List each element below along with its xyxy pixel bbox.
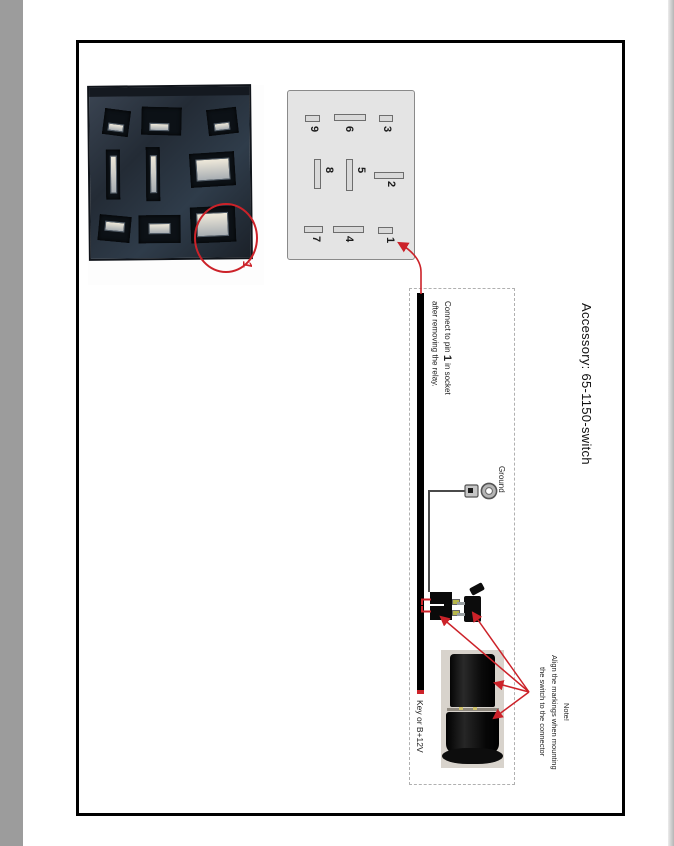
note-line2: Align the markings when mounting xyxy=(548,617,560,807)
pin-label-7: 7 xyxy=(310,236,322,242)
pin1-callout-number: 1 xyxy=(240,261,255,268)
switch-marking xyxy=(459,707,463,710)
switch-marking xyxy=(473,707,477,710)
connect-instruction-text: Connect to pin 1 in socket after removin… xyxy=(429,301,453,496)
note-line3: the switch to the connector xyxy=(536,617,548,807)
relay-slot xyxy=(102,108,131,137)
relay-slot xyxy=(141,107,182,136)
pin-slot-9 xyxy=(305,115,320,122)
relay-edge xyxy=(89,86,249,97)
left-margin-bar xyxy=(0,0,23,846)
document-viewer: 1 9 6 3 8 5 2 7 4 1 Connect to pin 1 in … xyxy=(0,0,674,846)
pin-slot-3 xyxy=(379,115,393,122)
switch-pin xyxy=(457,602,465,605)
main-power-wire xyxy=(417,293,424,690)
pin-label-8: 8 xyxy=(323,167,335,173)
switch-connector-symbol xyxy=(430,592,452,620)
switch-photo-upper-body xyxy=(450,654,495,707)
relay-socket-photo: 1 xyxy=(88,85,264,285)
pin-slot-5 xyxy=(346,159,353,191)
relay-slot xyxy=(97,214,131,243)
ground-label: Ground xyxy=(497,466,506,493)
connect-instruction-line2: after removing the relay. xyxy=(429,301,441,496)
pin-slot-7 xyxy=(304,226,323,233)
pin-layout-diagram: 9 6 3 8 5 2 7 4 1 xyxy=(287,90,415,260)
pin-label-4: 4 xyxy=(343,236,355,242)
mounting-note: Note! Align the markings when mounting t… xyxy=(536,617,572,807)
pin-slot-2 xyxy=(374,172,404,179)
relay-slot xyxy=(206,107,239,136)
pin-label-3: 3 xyxy=(381,126,393,132)
note-title: Note! xyxy=(560,617,572,807)
pin-label-9: 9 xyxy=(308,126,320,132)
scrollbar-track[interactable] xyxy=(668,0,674,846)
relay-slot xyxy=(146,147,161,201)
wire-end-terminal xyxy=(417,690,424,694)
key-power-label: Key or B+12V xyxy=(415,700,425,753)
pin-label-5: 5 xyxy=(355,167,367,173)
pin-label-6: 6 xyxy=(343,126,355,132)
pin-slot-1 xyxy=(378,227,393,234)
pin-label-1: 1 xyxy=(384,237,396,243)
relay-slot xyxy=(189,151,236,188)
pin-slot-4 xyxy=(333,226,364,233)
pin-label-2: 2 xyxy=(385,181,397,187)
connect-instruction-line1: Connect to pin 1 in socket xyxy=(441,301,454,496)
switch-photo-base-flange xyxy=(442,748,503,764)
connector-gap xyxy=(430,604,444,606)
switch-body-symbol xyxy=(464,596,481,622)
relay-slot xyxy=(138,215,180,243)
switch-pin xyxy=(457,613,465,616)
relay-slot xyxy=(106,150,121,200)
pin-slot-8 xyxy=(314,159,321,189)
pin-slot-6 xyxy=(334,114,366,121)
page-title: Accessory: 65-1150-switch xyxy=(579,303,594,465)
switch-product-photo xyxy=(441,650,504,768)
